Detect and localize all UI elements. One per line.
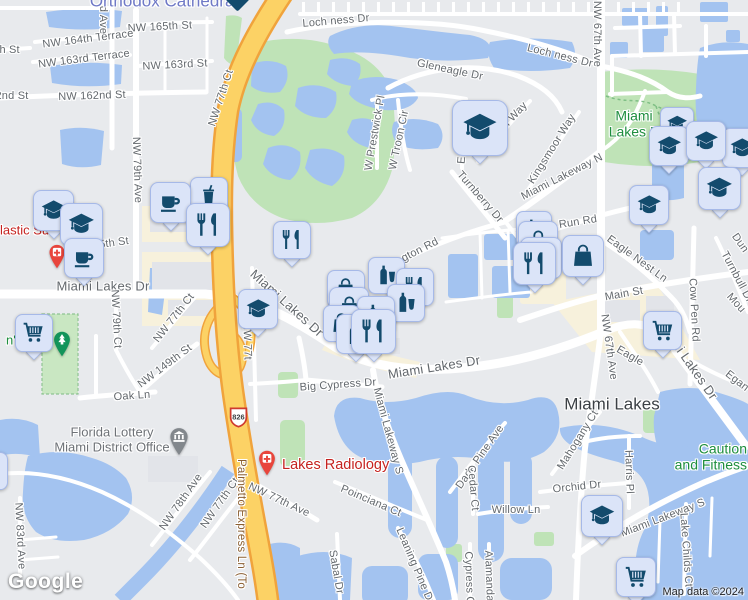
map-attribution: Map data ©2024 [663, 586, 745, 598]
svg-text:826: 826 [232, 412, 244, 421]
graduation-cap-icon [245, 296, 272, 323]
graduation-cap-icon [588, 502, 616, 530]
school-marker[interactable] [581, 495, 623, 537]
route-826-shield: 826 [228, 406, 249, 429]
fork-knife-icon [358, 316, 388, 346]
graduation-cap-icon [705, 174, 734, 203]
fork-knife-icon [279, 227, 304, 252]
restaurant-marker[interactable] [351, 309, 396, 354]
school-marker[interactable] [698, 167, 741, 210]
school-marker[interactable] [629, 185, 669, 225]
cafe-marker[interactable] [150, 182, 191, 223]
google-logo[interactable]: Google [8, 570, 83, 594]
graduation-cap-icon [656, 133, 683, 160]
restaurant-marker[interactable] [513, 242, 556, 285]
store-marker[interactable] [562, 235, 604, 277]
museum-pin[interactable] [168, 426, 191, 457]
restaurant-marker[interactable] [0, 452, 8, 490]
coffee-cup-icon [157, 189, 184, 216]
shopping-bag-icon [569, 242, 597, 270]
coffee-cup-icon [71, 245, 98, 272]
fork-knife-icon [0, 458, 2, 483]
school-marker[interactable] [649, 126, 689, 166]
graduation-cap-icon [693, 128, 720, 155]
school-marker[interactable] [238, 289, 278, 329]
restaurant-marker[interactable] [186, 203, 230, 247]
map-canvas[interactable]: NW 165th StNW 164th TerraceNW 163rd Terr… [0, 0, 748, 600]
graduation-cap-icon [636, 192, 663, 219]
graduation-cap-icon [729, 135, 748, 162]
pine-tree-icon [52, 330, 73, 358]
supermarket-marker[interactable] [643, 311, 682, 350]
shopping-cart-icon [21, 320, 46, 345]
school-marker[interactable] [452, 100, 508, 156]
fork-knife-icon [193, 210, 222, 239]
restaurant-marker[interactable] [273, 221, 311, 259]
bottle-glass-icon [393, 290, 418, 315]
school-marker[interactable] [686, 121, 726, 161]
radiology-pin[interactable] [257, 449, 278, 477]
park-pin[interactable] [52, 330, 73, 358]
museum-icon [168, 426, 191, 457]
fork-knife-icon [520, 249, 549, 278]
graduation-cap-icon [461, 109, 499, 147]
supermarket-marker[interactable] [15, 314, 53, 352]
driveway-teeth-strip [302, 2, 682, 13]
shopping-cart-icon [650, 318, 676, 344]
supermarket-marker[interactable] [616, 557, 656, 597]
graduation-cap-icon [67, 210, 96, 239]
medical-cross-icon [257, 449, 278, 477]
cafe-marker[interactable] [64, 238, 104, 278]
shopping-cart-icon [623, 564, 650, 591]
